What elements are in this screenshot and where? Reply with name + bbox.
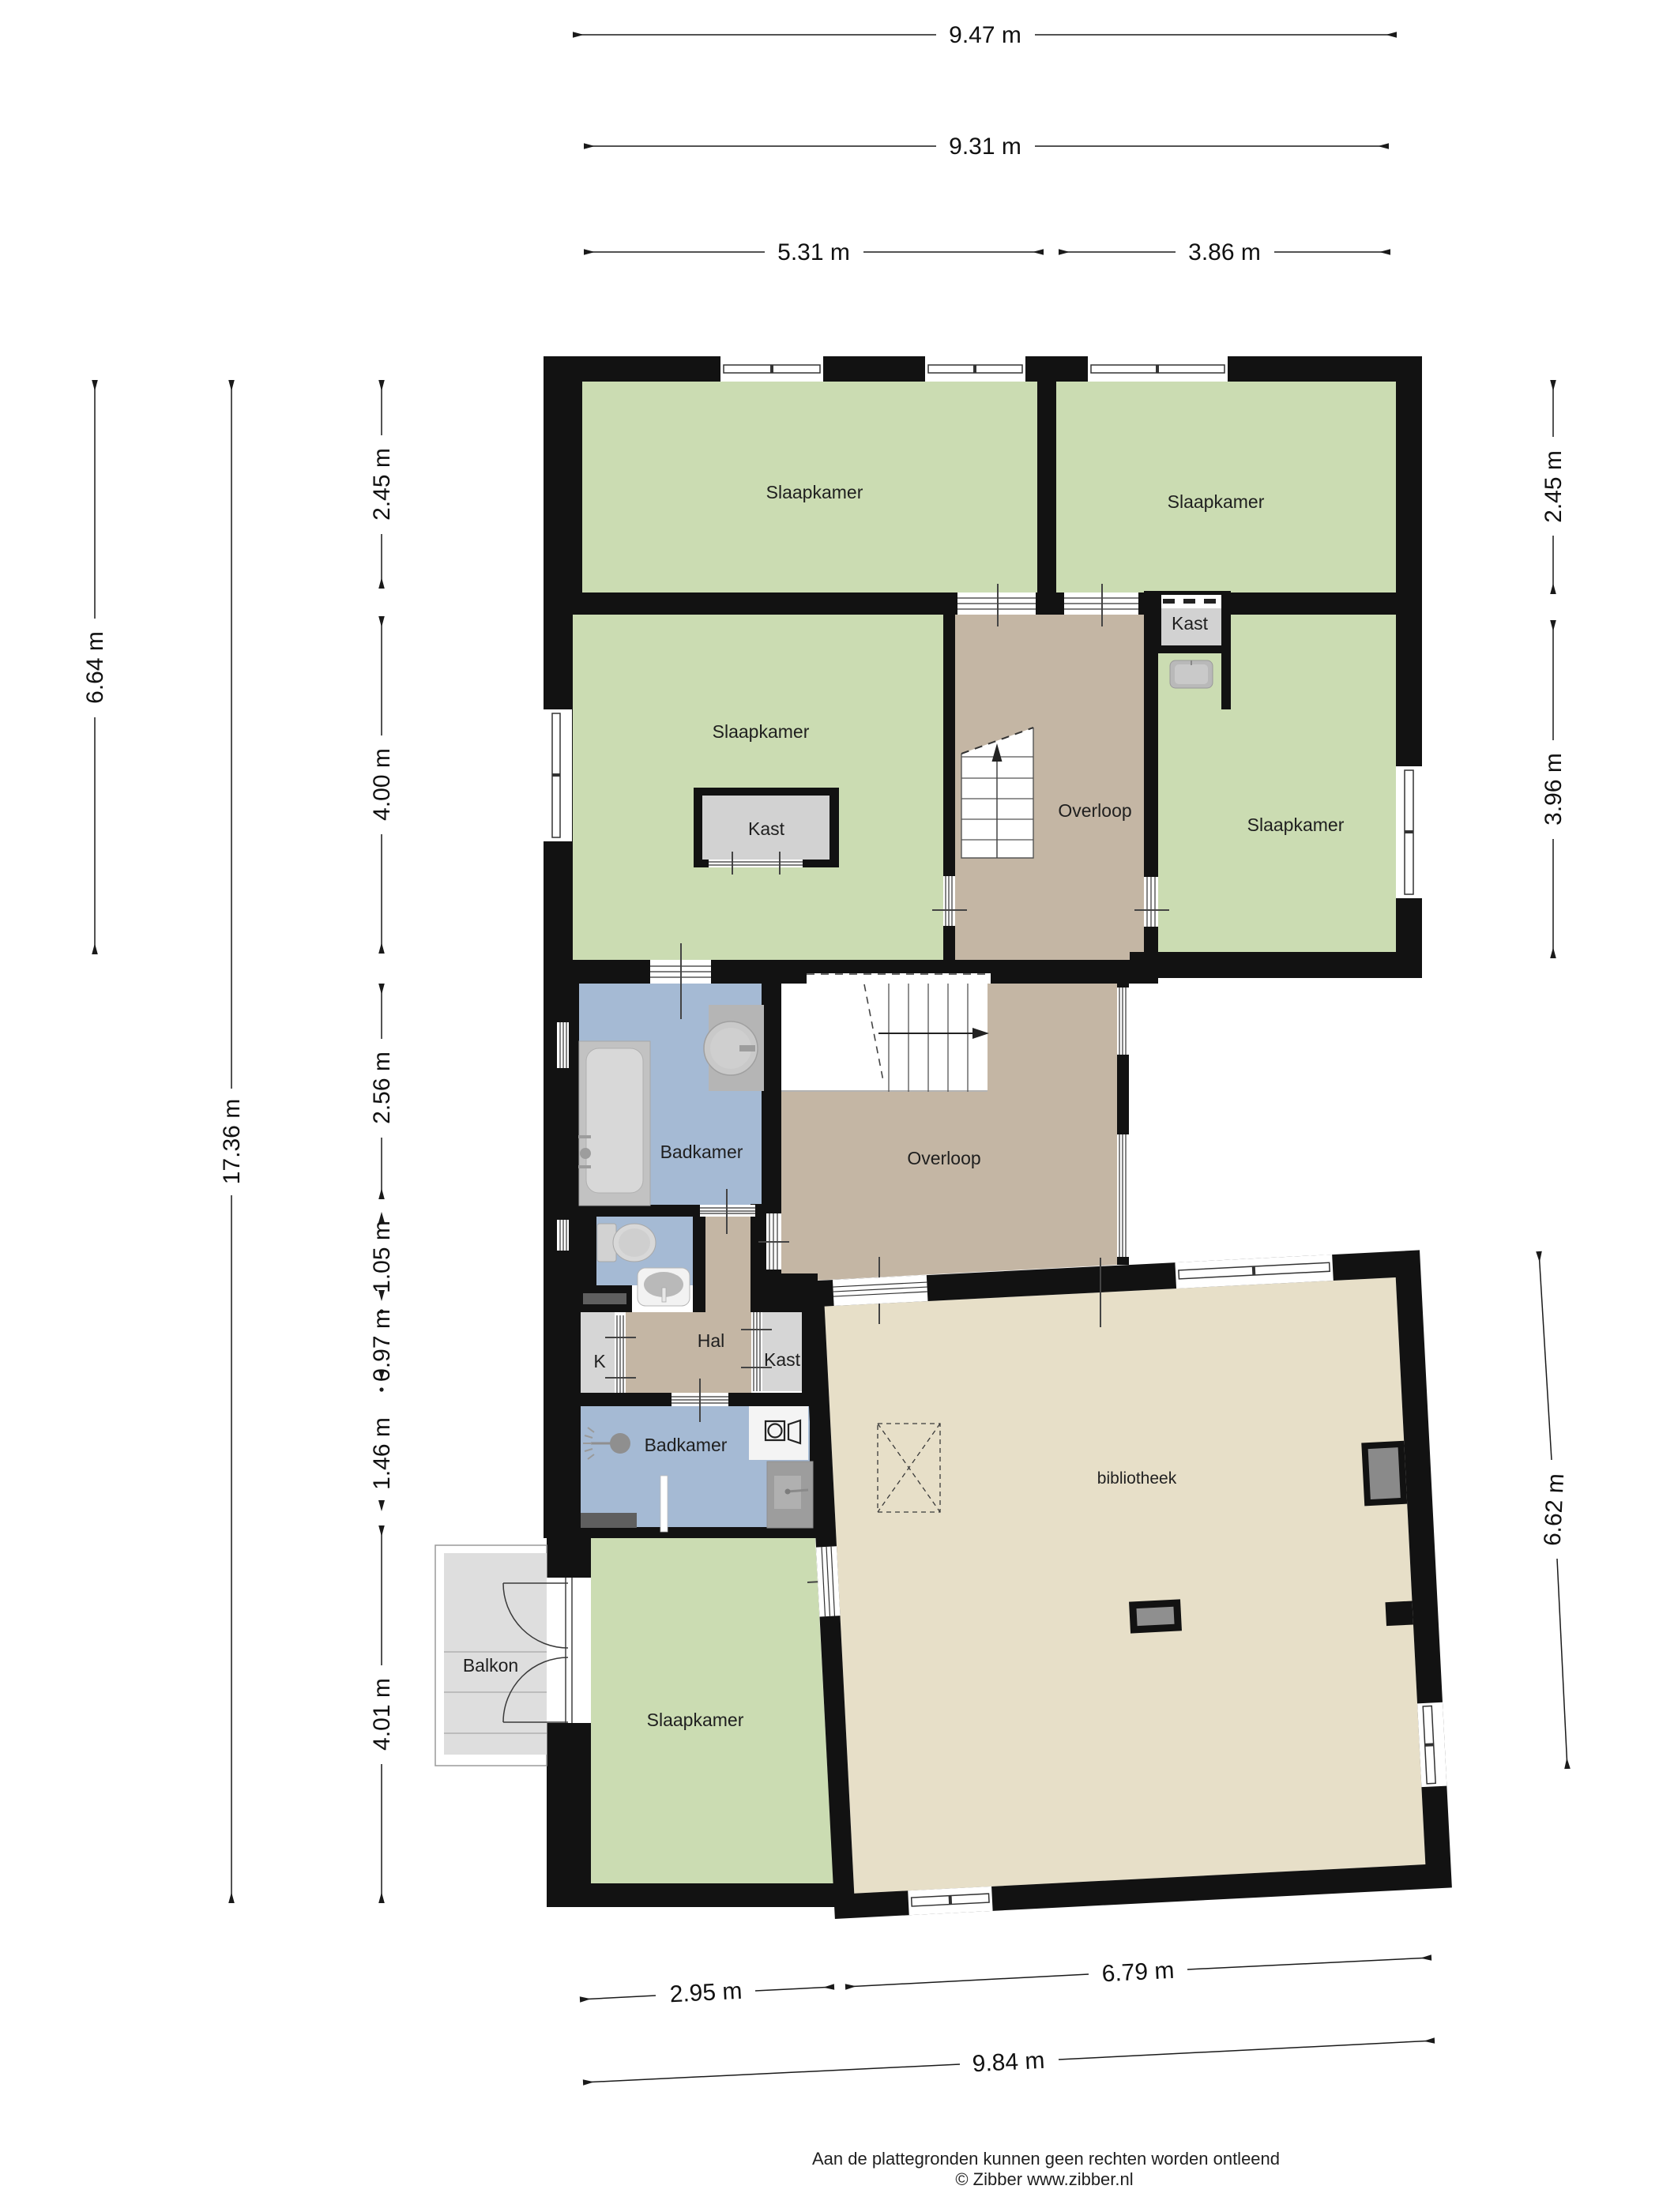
svg-text:6.62 m: 6.62 m: [1540, 1473, 1570, 1546]
svg-text:Kast: Kast: [764, 1349, 801, 1370]
svg-text:K: K: [593, 1351, 606, 1371]
svg-text:1.46 m: 1.46 m: [369, 1417, 395, 1490]
svg-text:5.31 m: 5.31 m: [777, 239, 850, 265]
svg-text:Aan de plattegronden kunnen ge: Aan de plattegronden kunnen geen rechten…: [812, 2149, 1280, 2169]
svg-text:3.86 m: 3.86 m: [1188, 239, 1261, 265]
svg-text:2.95 m: 2.95 m: [669, 1978, 743, 2008]
svg-text:4.01 m: 4.01 m: [369, 1678, 395, 1751]
svg-text:0.97 m: 0.97 m: [369, 1309, 395, 1382]
svg-text:Overloop: Overloop: [1058, 800, 1131, 821]
svg-text:1.05 m: 1.05 m: [369, 1221, 395, 1293]
svg-text:2.56 m: 2.56 m: [369, 1051, 395, 1124]
svg-text:4.00 m: 4.00 m: [369, 748, 395, 821]
svg-text:3.96 m: 3.96 m: [1540, 753, 1567, 826]
svg-text:9.47 m: 9.47 m: [949, 22, 1021, 48]
svg-text:9.84 m: 9.84 m: [972, 2048, 1045, 2078]
svg-text:Balkon: Balkon: [463, 1655, 518, 1676]
svg-text:bibliotheek: bibliotheek: [1097, 1469, 1177, 1488]
svg-text:Slaapkamer: Slaapkamer: [1247, 814, 1345, 835]
svg-text:Kast: Kast: [748, 818, 785, 839]
svg-text:Slaapkamer: Slaapkamer: [713, 721, 810, 742]
svg-text:Kast: Kast: [1172, 613, 1209, 634]
svg-text:6.64 m: 6.64 m: [82, 631, 108, 704]
svg-text:6.79 m: 6.79 m: [1101, 1958, 1175, 1988]
svg-text:Hal: Hal: [698, 1330, 725, 1351]
svg-text:9.31 m: 9.31 m: [949, 134, 1021, 160]
svg-text:© Zibber www.zibber.nl: © Zibber www.zibber.nl: [955, 2169, 1133, 2189]
svg-text:17.36 m: 17.36 m: [219, 1099, 245, 1184]
svg-text:Badkamer: Badkamer: [645, 1435, 728, 1455]
svg-text:2.45 m: 2.45 m: [369, 448, 395, 521]
svg-text:Overloop: Overloop: [907, 1148, 980, 1168]
svg-text:Slaapkamer: Slaapkamer: [647, 1710, 744, 1730]
svg-text:Badkamer: Badkamer: [660, 1142, 743, 1162]
svg-text:Slaapkamer: Slaapkamer: [1168, 491, 1265, 512]
svg-text:2.45 m: 2.45 m: [1540, 450, 1567, 523]
svg-text:Slaapkamer: Slaapkamer: [766, 482, 863, 502]
